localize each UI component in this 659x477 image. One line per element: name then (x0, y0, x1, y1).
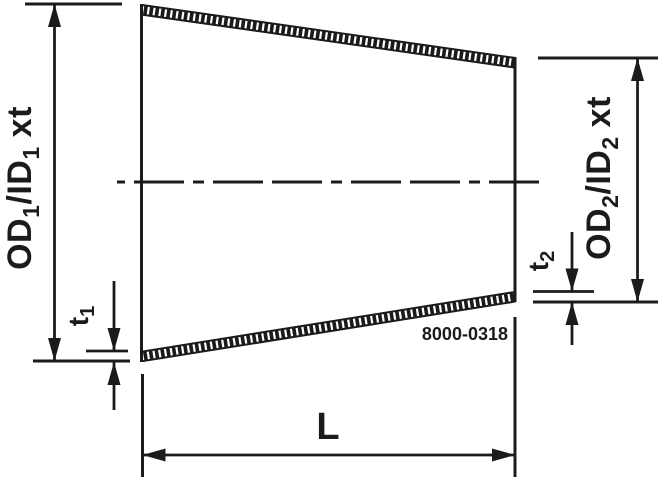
od1-label-main1: OD (1, 218, 39, 270)
t1-label-main: t (63, 317, 94, 326)
od1-dimension: OD1/ID1xt (1, 4, 130, 361)
od2-label-sub2: 2 (597, 136, 623, 149)
t2-label-main: t (523, 262, 554, 271)
t2-arrowhead-lower (566, 302, 579, 325)
t1-dimension: t1 (63, 281, 128, 410)
length-label: L (316, 406, 339, 448)
t2-label-sub: 2 (537, 251, 559, 262)
t1-arrowhead-lower (108, 362, 121, 385)
od1-label-sub1: 1 (18, 205, 44, 218)
od2-label-main2: /ID (580, 150, 618, 195)
od1-label-main2: /ID (1, 160, 39, 205)
reducer-dimension-diagram: OD1/ID1xt t1 OD2/ID2xt t2 L 8000-03 (0, 0, 659, 477)
top-wall-section (142, 10, 516, 63)
length-arrowhead-right (492, 449, 515, 462)
t1-arrowhead-upper (108, 328, 121, 351)
od1-label: OD1/ID1xt (1, 106, 44, 270)
od2-label-main3: xt (580, 96, 618, 127)
technical-drawing-reducer: OD1/ID1xt t1 OD2/ID2xt t2 L 8000-03 (0, 0, 659, 477)
od1-arrowhead-bottom (48, 338, 61, 361)
od2-label-sub1: 2 (597, 195, 623, 208)
od1-label-main3: xt (1, 106, 39, 137)
t2-arrowhead-upper (566, 269, 579, 292)
t1-label: t1 (63, 306, 99, 326)
od2-label: OD2/ID2xt (580, 96, 623, 260)
od1-arrowhead-top (48, 4, 61, 27)
od1-label-sub2: 1 (18, 146, 44, 159)
t1-label-sub: 1 (77, 306, 99, 317)
part-number-label: 8000-0318 (422, 324, 508, 344)
od2-arrowhead-top (631, 58, 644, 81)
length-arrowhead-left (143, 449, 166, 462)
od2-label-main1: OD (580, 208, 618, 260)
t2-label: t2 (523, 251, 559, 271)
od2-arrowhead-bottom (631, 279, 644, 302)
